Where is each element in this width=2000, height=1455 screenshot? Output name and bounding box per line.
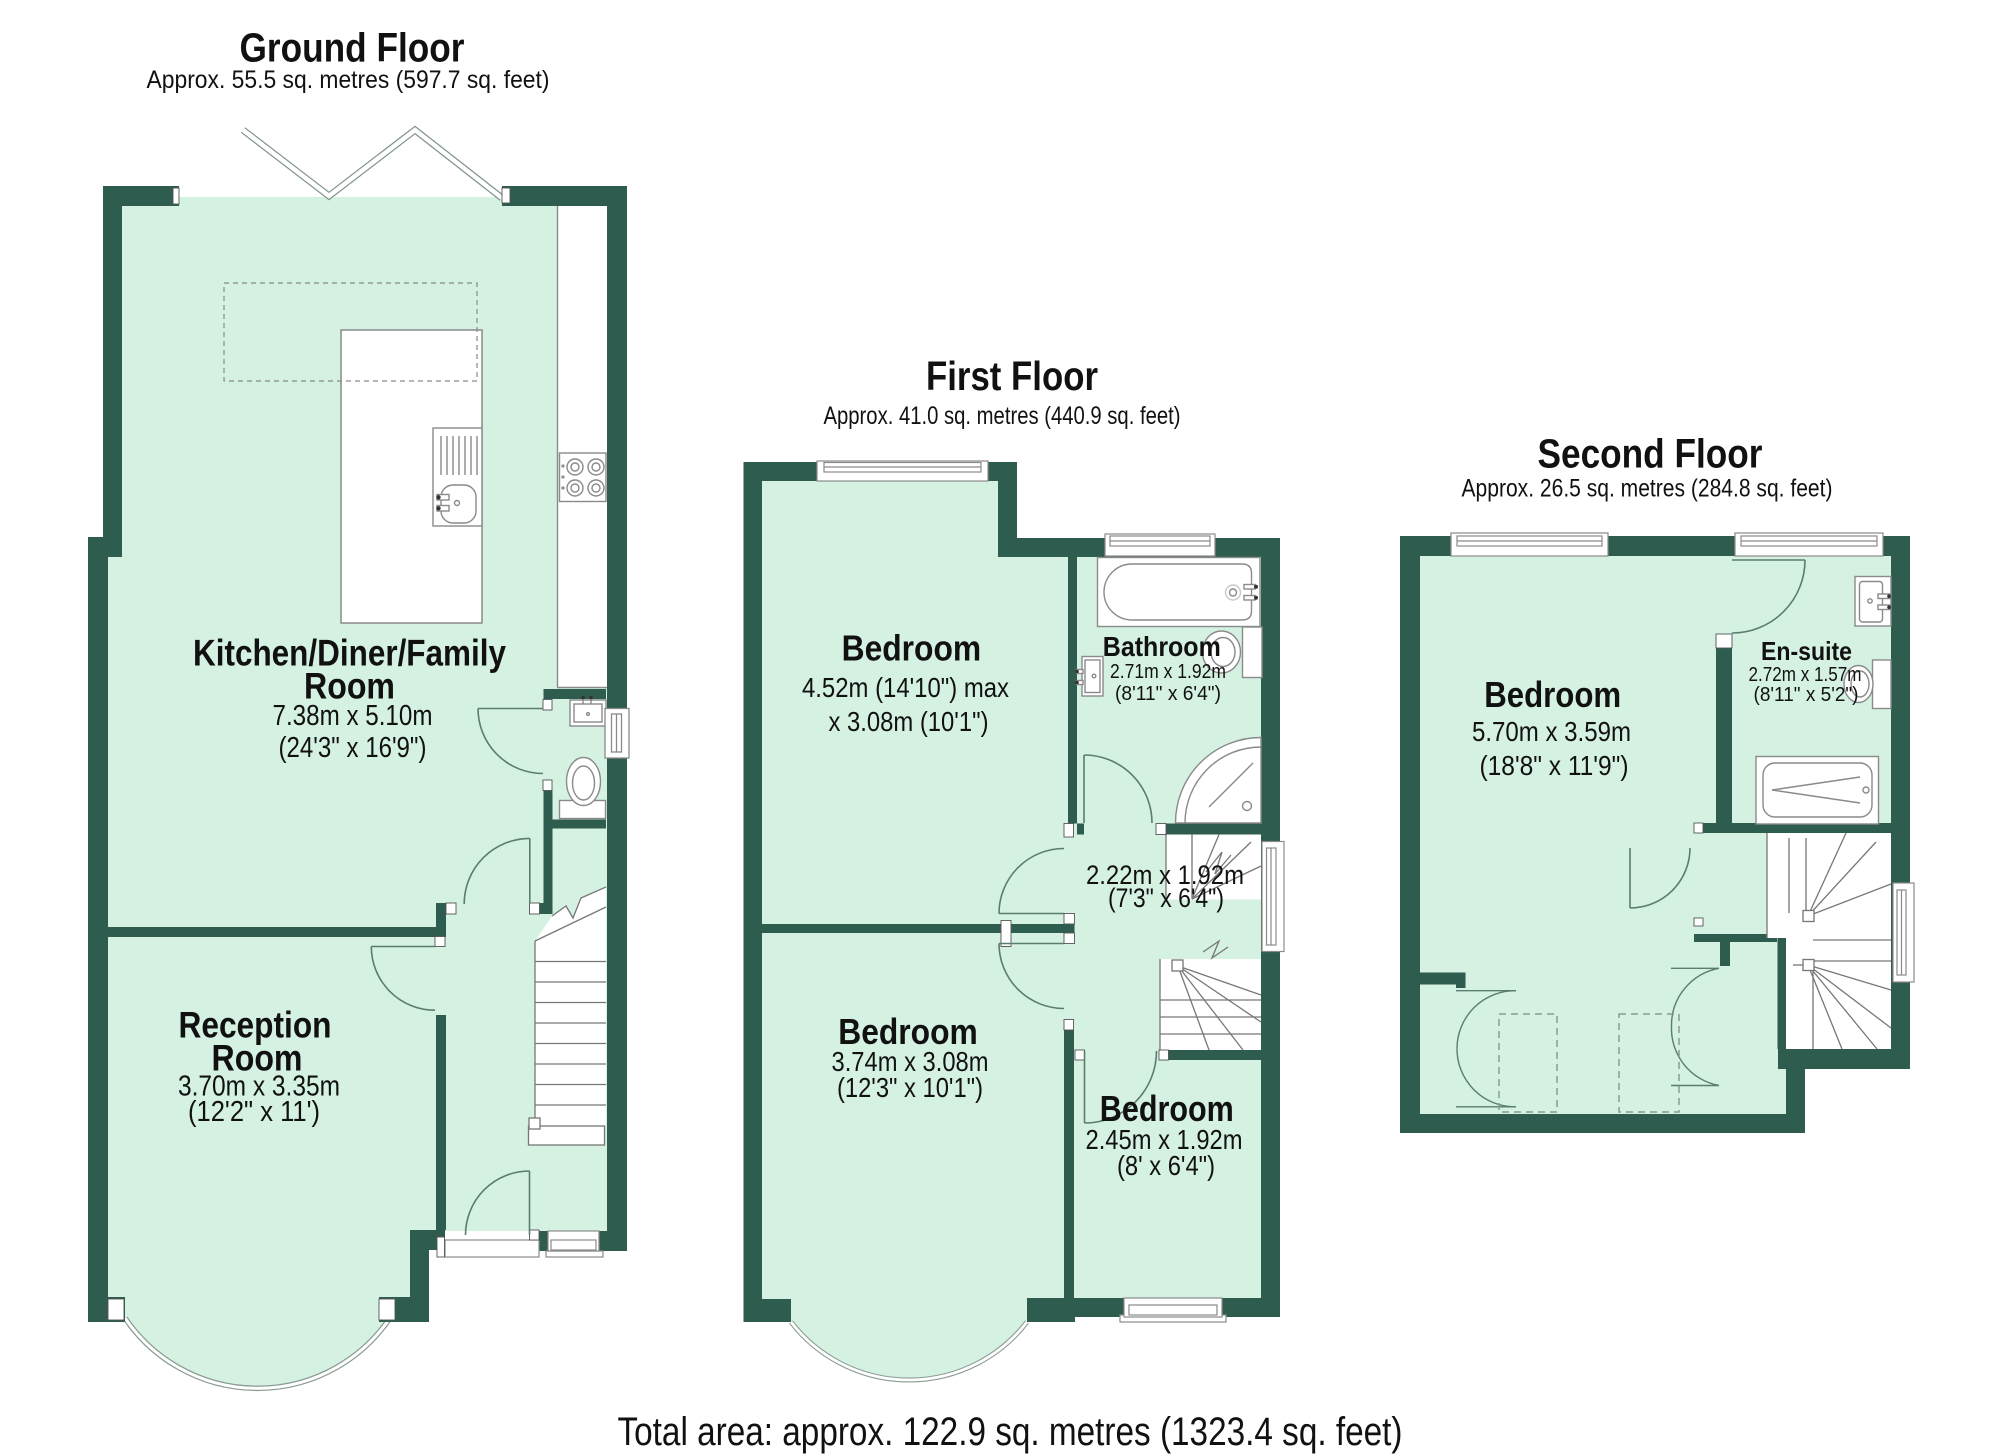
svg-text:Bedroom: Bedroom xyxy=(842,628,982,669)
svg-text:Ground Floor: Ground Floor xyxy=(240,25,465,71)
svg-text:(8' x 6'4"): (8' x 6'4") xyxy=(1117,1150,1215,1181)
svg-text:Approx. 26.5 sq. metres (284.8: Approx. 26.5 sq. metres (284.8 sq. feet) xyxy=(1462,475,1833,503)
svg-text:En-suite: En-suite xyxy=(1761,636,1852,666)
svg-text:(24'3" x 16'9"): (24'3" x 16'9") xyxy=(279,732,427,764)
svg-text:(18'8" x 11'9"): (18'8" x 11'9") xyxy=(1480,750,1629,781)
svg-text:(7'3" x 6'4"): (7'3" x 6'4") xyxy=(1108,883,1224,913)
svg-text:2.71m x 1.92m: 2.71m x 1.92m xyxy=(1110,660,1226,683)
svg-text:First Floor: First Floor xyxy=(926,353,1098,399)
svg-text:Bathroom: Bathroom xyxy=(1103,631,1221,662)
svg-text:x 3.08m (10'1"): x 3.08m (10'1") xyxy=(829,706,989,737)
svg-text:(12'2" x 11'): (12'2" x 11') xyxy=(188,1096,320,1128)
svg-text:7.38m x 5.10m: 7.38m x 5.10m xyxy=(273,700,433,732)
svg-text:(8'11" x 6'4"): (8'11" x 6'4") xyxy=(1115,682,1221,705)
svg-text:Bedroom: Bedroom xyxy=(1484,674,1621,715)
svg-text:5.70m x 3.59m: 5.70m x 3.59m xyxy=(1472,716,1631,747)
svg-text:Second Floor: Second Floor xyxy=(1538,431,1763,477)
svg-text:Bedroom: Bedroom xyxy=(1100,1088,1234,1129)
svg-text:4.52m (14'10") max: 4.52m (14'10") max xyxy=(802,672,1009,703)
svg-text:(12'3" x 10'1"): (12'3" x 10'1") xyxy=(837,1072,983,1103)
svg-text:Approx. 41.0 sq. metres (440.9: Approx. 41.0 sq. metres (440.9 sq. feet) xyxy=(824,402,1181,430)
svg-text:Approx. 55.5 sq. metres (597.7: Approx. 55.5 sq. metres (597.7 sq. feet) xyxy=(147,66,550,94)
svg-text:(8'11" x 5'2"): (8'11" x 5'2") xyxy=(1754,683,1859,706)
svg-text:Total area: approx. 122.9 sq.: Total area: approx. 122.9 sq. metres (13… xyxy=(618,1410,1403,1454)
